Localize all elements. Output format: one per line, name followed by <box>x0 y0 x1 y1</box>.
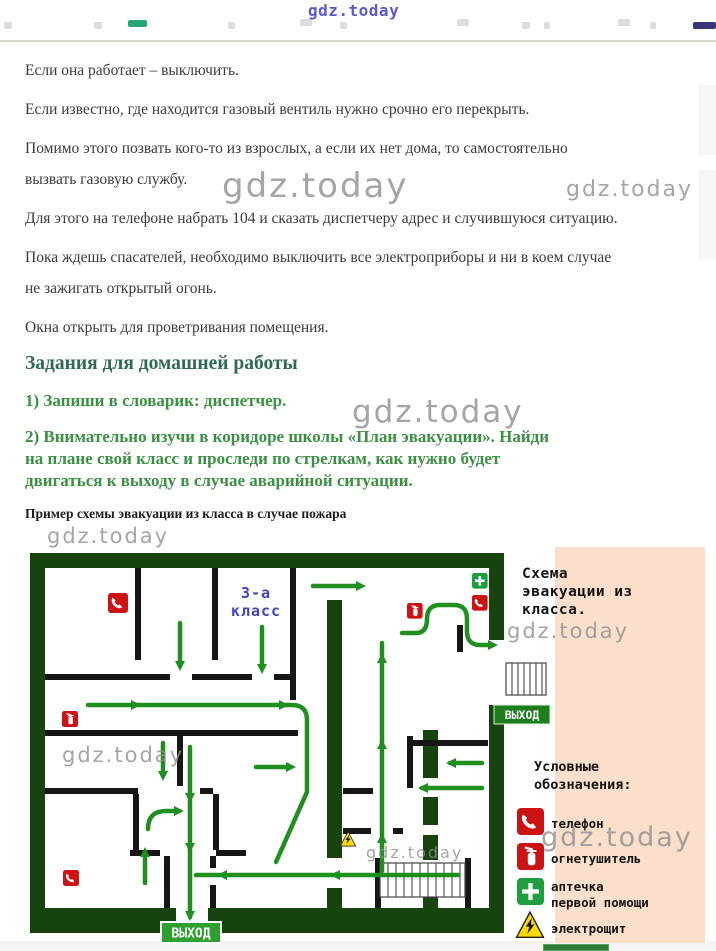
svg-text:класс: класс <box>231 602 281 620</box>
svg-text:эвакуации из: эвакуации из <box>522 584 633 600</box>
svg-text:3-а: 3-а <box>241 584 271 602</box>
cutoff-green-button[interactable] <box>543 944 609 951</box>
svg-text:класса.: класса. <box>522 602 587 618</box>
evacuation-plan-svg: 3-а класс ВЫХОД ВЫХОД Схема эвакуации из… <box>30 545 710 945</box>
toolbar-mark-icon[interactable] <box>457 19 469 26</box>
toolbar-mark-icon[interactable] <box>650 22 656 29</box>
toolbar-green-icon[interactable] <box>128 20 147 27</box>
figure-caption: Пример схемы эвакуации из класса в случа… <box>25 506 690 522</box>
paragraph: Помимо этого позвать кого-то из взрослых… <box>25 133 690 195</box>
exit-sign-bottom: ВЫХОД <box>161 922 221 943</box>
stairs <box>380 863 465 897</box>
electric-panel-icon <box>517 912 544 937</box>
paragraph-line: Для этого на телефоне набрать 104 и сказ… <box>25 203 690 234</box>
legend-label: огнетушитель <box>551 851 641 866</box>
svg-text:обозначения:: обозначения: <box>534 777 632 793</box>
task-2: 2) Внимательно изучи в коридоре школы «П… <box>25 426 690 492</box>
first-aid-icon <box>472 573 488 589</box>
paragraph: Если известно, где находится газовый вен… <box>25 94 690 125</box>
fire-extinguisher-icon <box>407 603 423 619</box>
exit-sign-right: ВЫХОД <box>494 705 550 724</box>
fire-extinguisher-icon <box>517 843 544 870</box>
toolbar-mark-icon[interactable] <box>94 22 102 29</box>
toolbar-mark-icon[interactable] <box>4 22 12 29</box>
svg-text:Условные: Условные <box>534 759 599 775</box>
stairs <box>506 663 546 695</box>
toolbar-navy-icon[interactable] <box>693 22 716 29</box>
first-aid-icon <box>517 878 544 905</box>
legend-label: электрощит <box>551 921 626 936</box>
toolbar-mark-icon[interactable] <box>618 19 630 26</box>
fire-extinguisher-icon <box>62 711 78 727</box>
paragraph-line: вызвать газовую службу. <box>25 164 690 195</box>
task-1: 1) Запиши в словарик: диспетчер. <box>25 390 690 412</box>
legend-label: телефон <box>551 816 604 831</box>
paragraph: Окна открыть для проветривания помещения… <box>25 312 690 343</box>
toolbar-mark-icon[interactable] <box>300 19 312 26</box>
paragraph: Если она работает – выключить. <box>25 55 690 86</box>
task-line: двигаться к выходу в случае аварийной си… <box>25 470 690 492</box>
svg-text:ВЫХОД: ВЫХОД <box>171 927 210 942</box>
legend-label: аптечка <box>551 879 604 894</box>
article: Если она работает – выключить. Если изве… <box>25 55 690 522</box>
evacuation-plan-figure: 3-а класс ВЫХОД ВЫХОД Схема эвакуации из… <box>30 545 710 945</box>
svg-text:ВЫХОД: ВЫХОД <box>505 708 540 722</box>
site-watermark-top: gdz.today <box>308 1 399 20</box>
toolbar-mark-icon[interactable] <box>544 22 550 29</box>
task-line: 1) Запиши в словарик: диспетчер. <box>25 390 690 412</box>
toolbar-mark-icon[interactable] <box>340 22 347 29</box>
right-edge-panel <box>699 85 716 155</box>
phone-icon <box>472 595 488 611</box>
paragraph-line: Если она работает – выключить. <box>25 55 690 86</box>
paragraph-line: Пока ждешь спасателей, необходимо выключ… <box>25 242 690 273</box>
phone-icon <box>63 870 79 886</box>
paragraph-line: не зажигать открытый огонь. <box>25 273 690 304</box>
phone-icon <box>517 808 544 835</box>
toolbar-mark-icon[interactable] <box>228 22 235 29</box>
legend-label: первой помощи <box>551 895 649 910</box>
toolbar-mark-icon[interactable] <box>522 22 530 29</box>
right-edge-panel <box>699 170 716 260</box>
paragraph-line: Помимо этого позвать кого-то из взрослых… <box>25 133 690 164</box>
task-line: на плане свой класс и проследи по стрелк… <box>25 448 690 470</box>
paragraph-line: Окна открыть для проветривания помещения… <box>25 312 690 343</box>
paragraph-line: Если известно, где находится газовый вен… <box>25 94 690 125</box>
page: gdz.today Если она работает – выключить.… <box>0 0 716 951</box>
paragraph: Пока ждешь спасателей, необходимо выключ… <box>25 242 690 304</box>
paragraph: Для этого на телефоне набрать 104 и сказ… <box>25 203 690 234</box>
homework-heading: Задания для домашней работы <box>25 351 690 376</box>
task-line: 2) Внимательно изучи в коридоре школы «П… <box>25 426 690 448</box>
svg-text:Схема: Схема <box>522 566 568 582</box>
phone-icon <box>108 593 128 613</box>
